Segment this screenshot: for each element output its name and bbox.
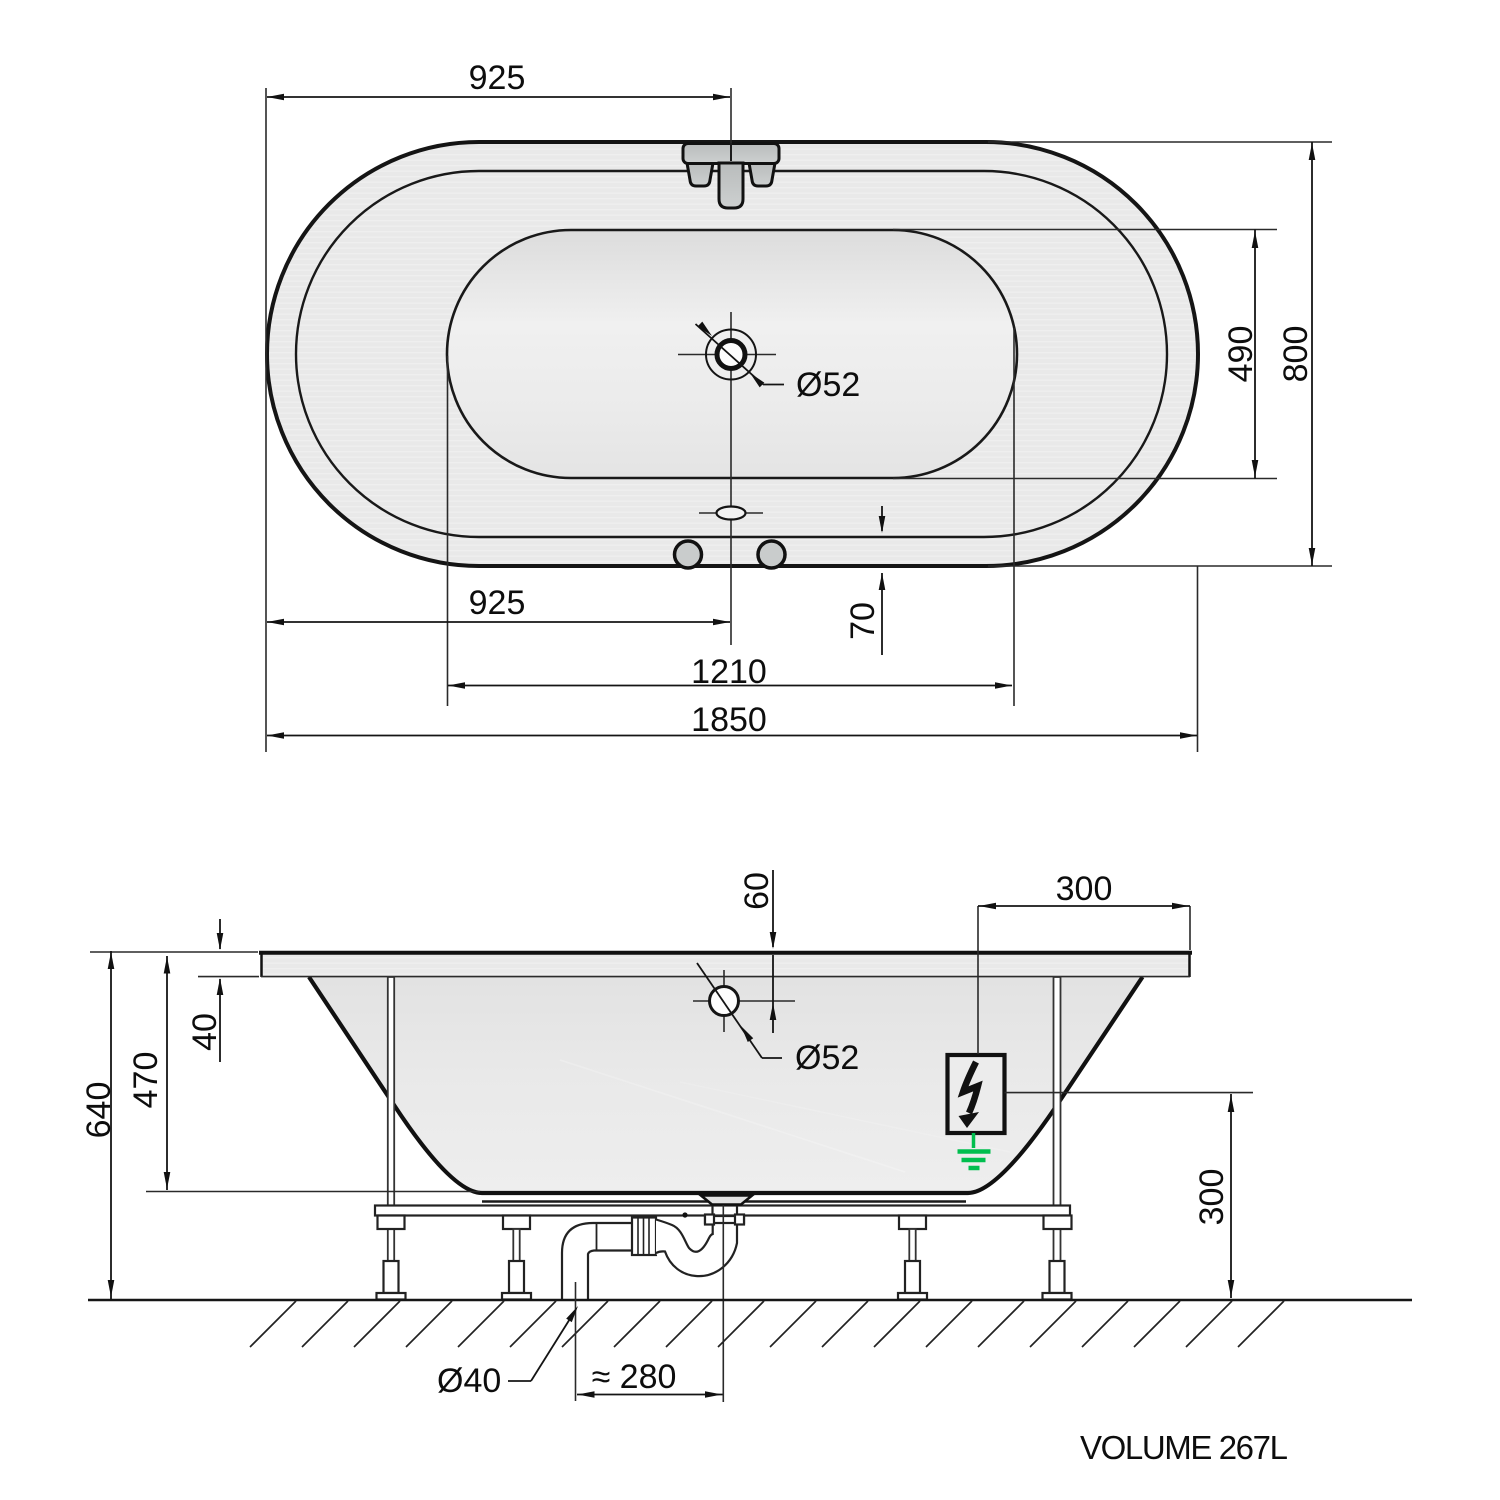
svg-text:490: 490 xyxy=(1222,326,1260,383)
svg-text:470: 470 xyxy=(127,1052,165,1109)
svg-text:≈ 280: ≈ 280 xyxy=(592,1358,677,1396)
svg-text:640: 640 xyxy=(80,1082,118,1139)
svg-text:1850: 1850 xyxy=(691,701,767,739)
svg-text:40: 40 xyxy=(186,1013,224,1051)
svg-text:925: 925 xyxy=(469,584,526,622)
svg-text:70: 70 xyxy=(844,602,882,640)
svg-text:Ø52: Ø52 xyxy=(795,1039,859,1077)
svg-text:1210: 1210 xyxy=(691,653,767,691)
svg-text:60: 60 xyxy=(738,872,776,910)
svg-text:300: 300 xyxy=(1056,870,1113,908)
svg-text:VOLUME 267L: VOLUME 267L xyxy=(1080,1429,1288,1466)
svg-text:925: 925 xyxy=(469,59,526,97)
svg-text:800: 800 xyxy=(1277,326,1315,383)
svg-text:300: 300 xyxy=(1193,1169,1231,1226)
svg-text:Ø40: Ø40 xyxy=(437,1362,501,1400)
svg-text:Ø52: Ø52 xyxy=(796,366,860,404)
